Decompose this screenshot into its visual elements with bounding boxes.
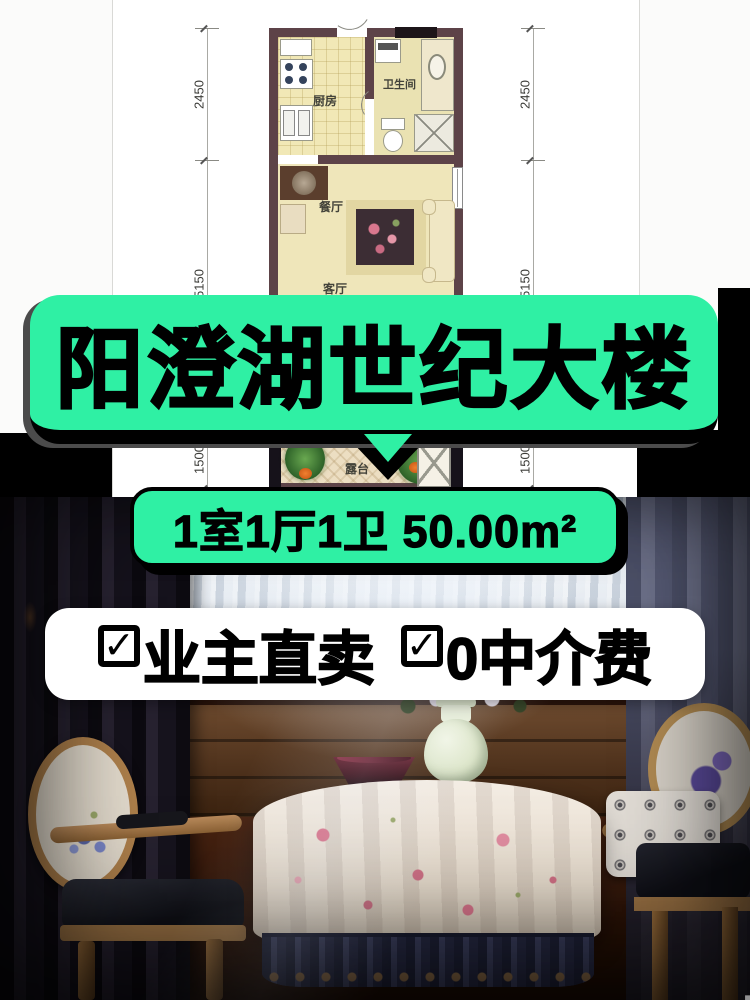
features-banner: ✓ 业主直卖 ✓ 0中介费 — [45, 608, 705, 700]
shower-symbol — [414, 114, 454, 152]
toilet-tank-symbol — [381, 118, 405, 130]
interior-photo: 房天下 Fang.com — [0, 497, 750, 1000]
fang-watermark-logo: Fang.com — [742, 988, 750, 1000]
fridge-symbol — [280, 39, 312, 56]
stove-symbol — [280, 59, 313, 89]
spec-text: 1室1厅1卫 50.00m² — [173, 495, 577, 560]
photo-vignette — [0, 497, 750, 1000]
dimension-tick — [195, 28, 219, 29]
rug-symbol — [346, 200, 426, 275]
toilet-bowl-symbol — [383, 130, 403, 152]
feature-zero-commission: ✓ 0中介费 — [401, 612, 652, 696]
washer-symbol — [375, 39, 401, 63]
kitchen-sink-symbol — [280, 105, 313, 141]
feature-label: 0中介费 — [446, 612, 652, 696]
room-label-bathroom: 卫生间 — [383, 76, 416, 92]
dim-label-1500-left: 1500 — [192, 440, 207, 480]
basin-symbol — [428, 54, 446, 80]
dimension-tick — [195, 160, 219, 161]
dimension-tick — [521, 160, 545, 161]
feature-label: 业主直卖 — [143, 612, 375, 696]
wall-column — [395, 27, 437, 38]
spec-banner: 1室1厅1卫 50.00m² — [130, 487, 620, 567]
checkbox-icon: ✓ — [401, 625, 443, 667]
wall — [318, 155, 463, 164]
title-banner: 阳澄湖世纪大楼 — [30, 295, 718, 444]
room-label-kitchen: 厨房 — [313, 92, 337, 109]
checkbox-icon: ✓ — [98, 625, 140, 667]
dim-label-2450-left: 2450 — [192, 75, 207, 115]
flower-symbol — [299, 468, 312, 479]
dimension-tick — [521, 28, 545, 29]
dining-chair-symbol — [280, 204, 306, 234]
wall — [269, 28, 337, 37]
dim-label-2450-right: 2450 — [518, 75, 533, 115]
wall-column — [451, 438, 463, 492]
dim-label-1500-right: 1500 — [518, 440, 533, 480]
sofa-symbol — [429, 200, 455, 282]
title-banner-tail — [364, 434, 412, 462]
sideboard-symbol — [280, 166, 328, 200]
feature-owner-direct: ✓ 业主直卖 — [98, 612, 375, 696]
building-title: 阳澄湖世纪大楼 — [55, 299, 692, 426]
listing-cover: 厨房 卫生间 餐厅 客厅 露台 2450 5150 1500 2450 5150… — [0, 0, 750, 1000]
room-label-dining: 餐厅 — [319, 198, 343, 215]
